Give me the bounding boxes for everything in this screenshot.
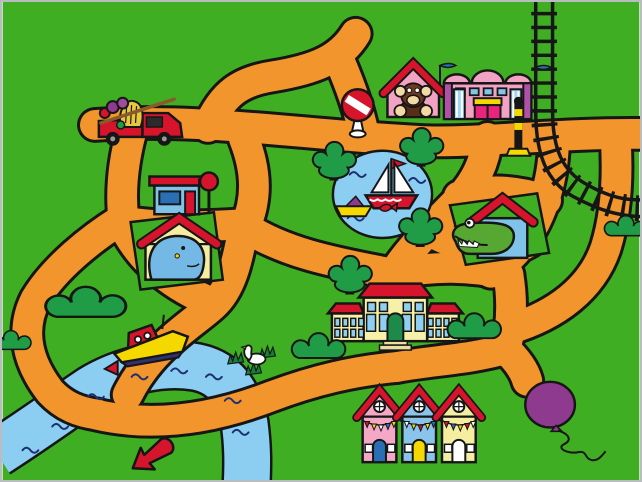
hotspot-tree-2 bbox=[403, 129, 441, 169]
hotspot-bush-4 bbox=[610, 218, 640, 240]
hotspot-toy-boat[interactable] bbox=[334, 192, 397, 220]
hotspot-monkey-house[interactable] bbox=[385, 62, 443, 120]
hotspot-hippo-house[interactable] bbox=[130, 210, 225, 291]
hotspot-balloon[interactable] bbox=[522, 377, 611, 458]
game-window bbox=[0, 0, 642, 482]
hotspot-tree-3 bbox=[402, 209, 440, 249]
hotspot-bush-5 bbox=[3, 333, 31, 355]
hotspot-stop-sign[interactable] bbox=[338, 87, 380, 139]
hotspot-fruit-truck[interactable] bbox=[95, 93, 188, 147]
hotspot-tree-1 bbox=[316, 143, 354, 183]
hotspot-row-houses[interactable] bbox=[356, 379, 483, 464]
hotspot-crocodile-house[interactable] bbox=[448, 190, 551, 267]
town-map-canvas[interactable] bbox=[2, 2, 640, 480]
hotspot-river bbox=[3, 315, 263, 480]
hotspot-bush-3 bbox=[454, 319, 494, 343]
hotspot-tree-4 bbox=[332, 257, 370, 297]
hotspot-bush-1 bbox=[57, 290, 115, 322]
hotspot-bush-2 bbox=[300, 339, 338, 361]
